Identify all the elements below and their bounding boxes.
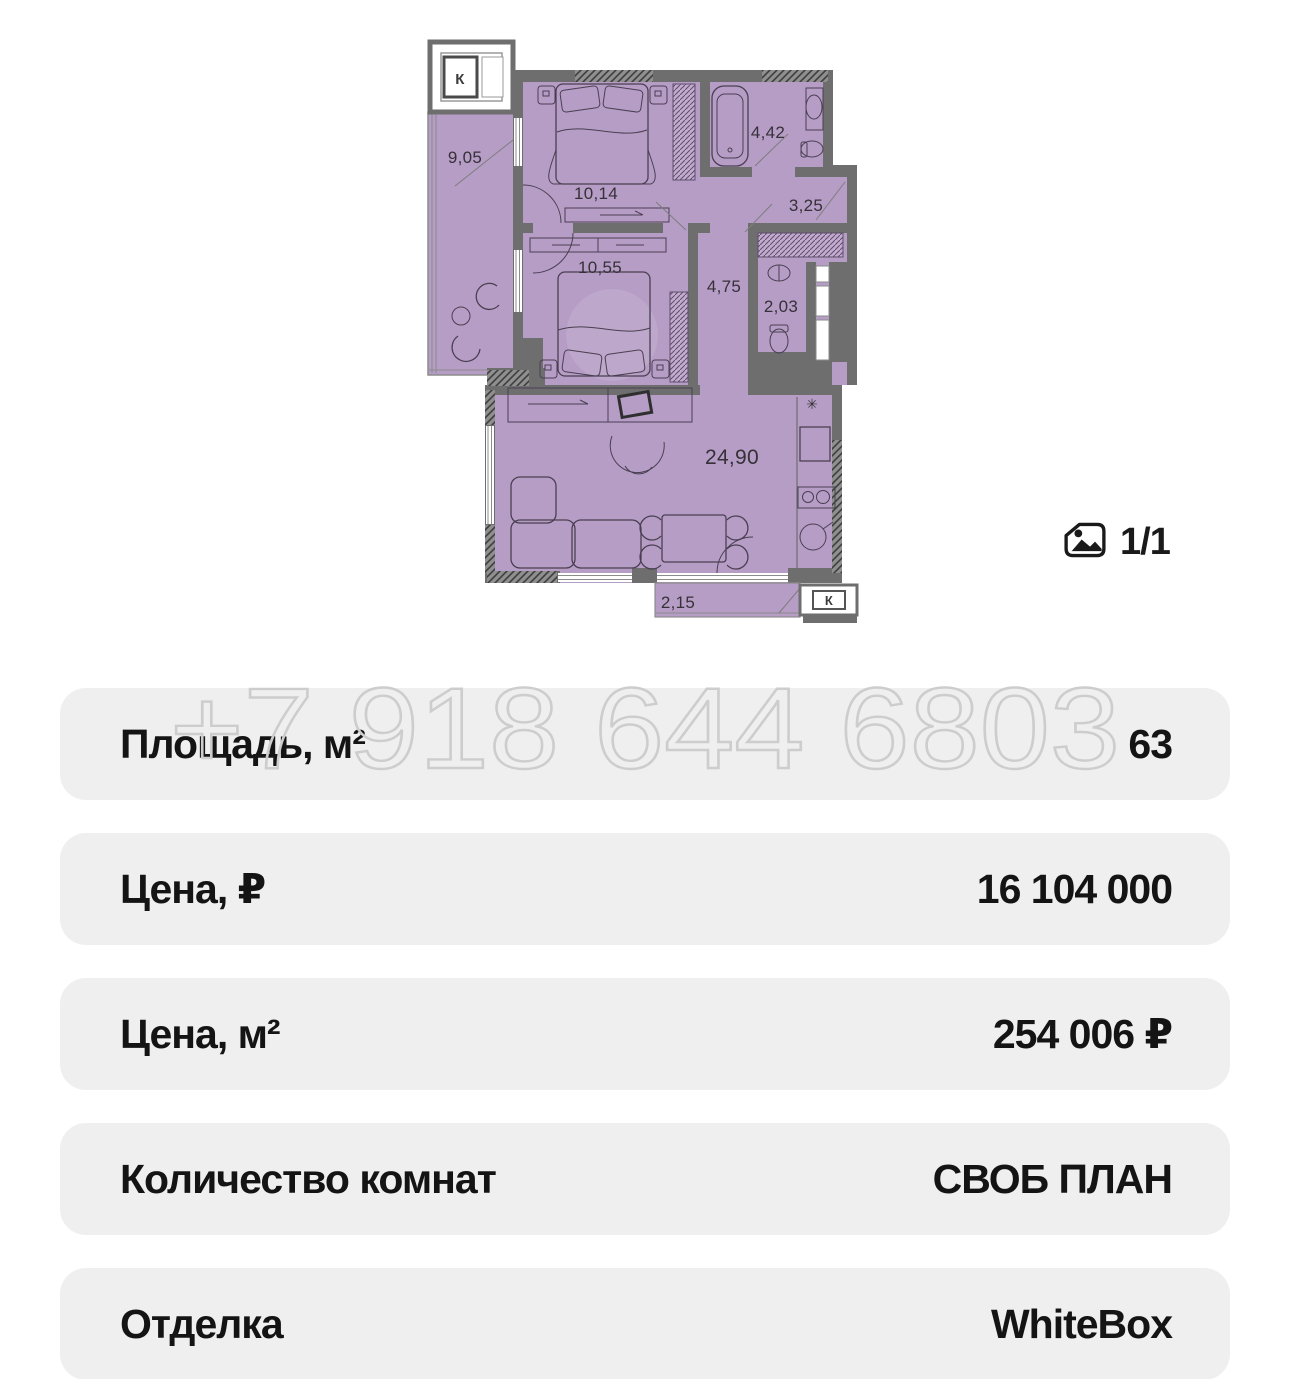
row-value: 63 <box>1128 721 1172 768</box>
detail-row-rooms: Количество комнат СВОБ ПЛАН <box>60 1123 1230 1235</box>
label-loggia: 9,05 <box>448 148 482 167</box>
shaft-top-label: К <box>455 71 465 88</box>
label-wc: 2,03 <box>764 297 798 316</box>
label-bedroom1: 10,14 <box>574 184 618 203</box>
floorplan-svg: К <box>420 30 870 630</box>
detail-row-price: Цена, ₽ 16 104 000 <box>60 833 1230 945</box>
row-label: Количество комнат <box>120 1156 496 1203</box>
row-value: 254 006 ₽ <box>993 1010 1172 1058</box>
detail-row-area: Площадь, м² 63 <box>60 688 1230 800</box>
plan-logo-watermark <box>566 289 658 381</box>
row-label: Площадь, м² <box>120 721 365 768</box>
detail-row-price-per-m2: Цена, м² 254 006 ₽ <box>60 978 1230 1090</box>
row-value: 16 104 000 <box>977 866 1172 913</box>
label-bathroom: 4,42 <box>751 123 785 142</box>
shaft-bottom-label: К <box>825 593 833 608</box>
row-value: WhiteBox <box>991 1301 1172 1348</box>
kitchen-symbol: ✳ <box>806 396 818 412</box>
shaft-box-top: К <box>430 42 513 112</box>
label-balcony: 2,15 <box>661 593 695 612</box>
row-label: Цена, ₽ <box>120 865 265 913</box>
floorplan-image[interactable]: К <box>420 30 870 630</box>
row-label: Цена, м² <box>120 1011 280 1058</box>
photo-counter[interactable]: 1/1 <box>1062 520 1170 565</box>
photo-counter-text: 1/1 <box>1120 521 1170 564</box>
detail-row-finish: Отделка WhiteBox <box>60 1268 1230 1379</box>
label-living: 24,90 <box>705 446 759 469</box>
shaft-box-bottom: К <box>800 585 857 623</box>
row-label: Отделка <box>120 1301 283 1348</box>
label-hallway: 3,25 <box>789 196 823 215</box>
label-bedroom2: 10,55 <box>578 258 622 277</box>
row-value: СВОБ ПЛАН <box>933 1156 1172 1203</box>
photo-icon <box>1062 520 1108 565</box>
label-hall: 4,75 <box>707 277 741 296</box>
listing-page: К <box>0 0 1290 1379</box>
